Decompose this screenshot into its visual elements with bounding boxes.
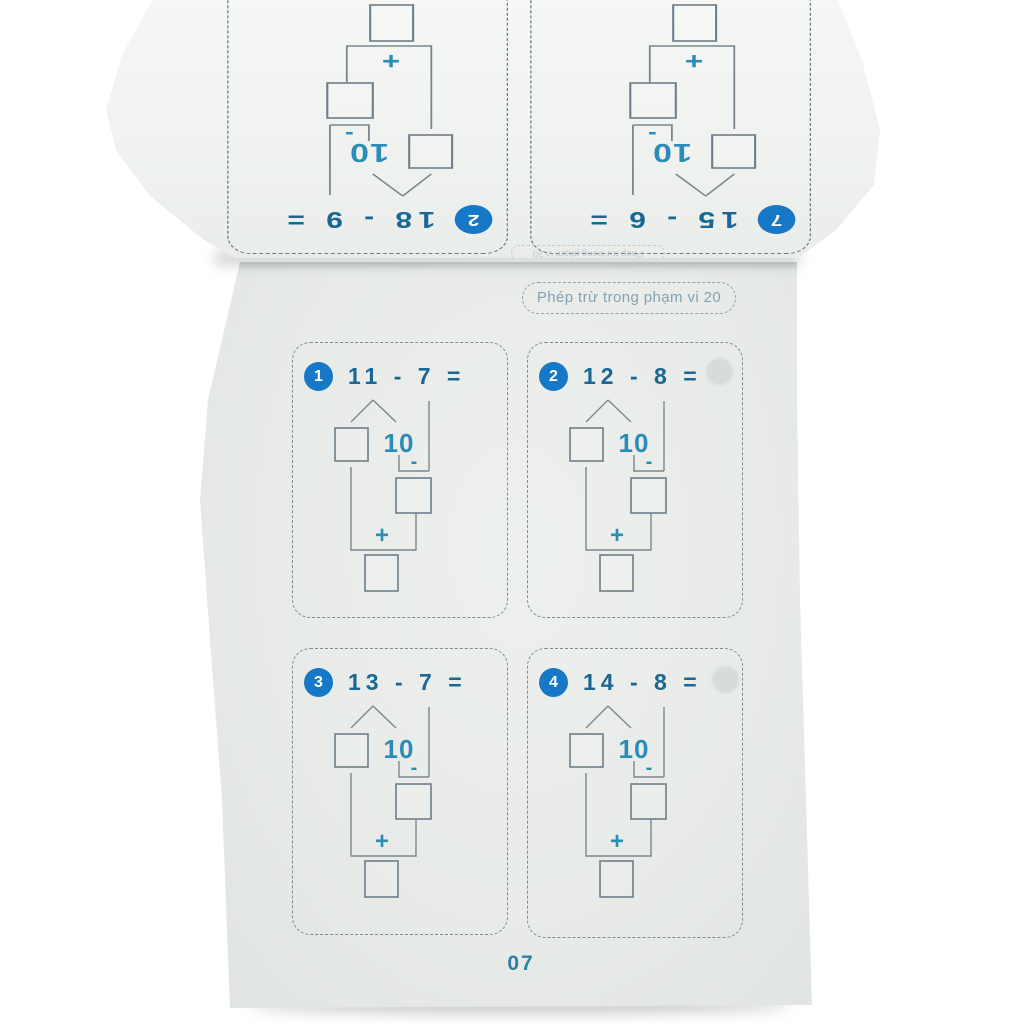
decomposition-diagram: 10 - + <box>293 391 509 619</box>
flipped-page-content: 7 15 - 6 = 10 - + <box>100 0 890 266</box>
ten-label: 10 <box>349 138 389 166</box>
answer-box <box>396 478 431 513</box>
answer-box <box>673 5 716 41</box>
minus-sign: - <box>646 757 653 779</box>
split-caret <box>373 174 432 196</box>
answer-box <box>600 861 633 897</box>
plus-sign: + <box>610 828 624 855</box>
exercise-header: 1 11 - 7 = <box>304 362 465 391</box>
plus-sign: + <box>610 522 624 549</box>
split-caret <box>586 400 631 422</box>
exercise-equation: 11 - 7 = <box>348 363 465 390</box>
answer-box <box>712 135 755 168</box>
answer-box <box>631 784 666 819</box>
split-caret <box>351 706 396 728</box>
minus-sign: - <box>411 451 418 473</box>
exercise-card: 2 18 - 9 = 10 - + <box>227 0 508 254</box>
exercise-header: 4 14 - 8 = <box>539 668 702 697</box>
answer-box <box>570 734 603 767</box>
exercise-equation: 18 - 9 = <box>281 206 435 233</box>
flipped-previous-page: 7 15 - 6 = 10 - + <box>100 0 890 266</box>
answer-box <box>630 83 676 118</box>
exercise-equation: 15 - 6 = <box>584 206 738 233</box>
answer-box <box>335 734 368 767</box>
decomposition-diagram: 10 - + <box>226 0 507 205</box>
answer-box <box>365 861 398 897</box>
exercise-header: 7 15 - 6 = <box>584 205 795 234</box>
decomposition-diagram: 10 - + <box>293 697 509 925</box>
plus-sign: + <box>375 828 389 855</box>
split-caret <box>351 400 396 422</box>
plus-sign: + <box>382 48 400 75</box>
split-caret <box>586 706 631 728</box>
exercise-header: 2 18 - 9 = <box>281 205 492 234</box>
exercise-card: 1 11 - 7 = 10 - + <box>292 342 508 618</box>
minus-sign: - <box>345 124 354 146</box>
decomposition-diagram: 10 - + <box>528 391 744 619</box>
answer-box <box>327 83 373 118</box>
exercise-card: 2 12 - 8 = 10 - + <box>527 342 743 618</box>
decomposition-diagram: 10 - + <box>528 697 744 925</box>
page-number: 07 <box>486 952 556 976</box>
split-caret <box>676 174 735 196</box>
exercise-number-badge: 4 <box>539 668 568 697</box>
decomposition-diagram: 10 - + <box>529 0 810 205</box>
exercise-number-badge: 2 <box>455 205 493 234</box>
workbook-photo: Phép trừ trong phạm vi 20 1 11 - 7 = 10 … <box>0 0 1024 1024</box>
exercise-equation: 14 - 8 = <box>583 669 702 696</box>
exercise-header: 2 12 - 8 = <box>539 362 702 391</box>
exercise-card: 3 13 - 7 = 10 - + <box>292 648 508 935</box>
plus-sign: + <box>685 48 703 75</box>
answer-box <box>365 555 398 591</box>
exercise-equation: 13 - 7 = <box>348 669 467 696</box>
answer-box <box>570 428 603 461</box>
answer-box <box>335 428 368 461</box>
exercise-header: 3 13 - 7 = <box>304 668 467 697</box>
minus-sign: - <box>648 124 657 146</box>
exercise-card: 4 14 - 8 = 10 - + <box>527 648 743 938</box>
answer-box <box>370 5 413 41</box>
exercise-number-badge: 1 <box>304 362 333 391</box>
exercise-number-badge: 3 <box>304 668 333 697</box>
lesson-title-badge: Phép trừ trong phạm vi 20 <box>522 282 736 314</box>
answer-box <box>631 478 666 513</box>
plus-sign: + <box>375 522 389 549</box>
answer-box <box>600 555 633 591</box>
exercise-card: 7 15 - 6 = 10 - + <box>530 0 811 254</box>
ten-label: 10 <box>652 138 692 166</box>
minus-sign: - <box>411 757 418 779</box>
minus-sign: - <box>646 451 653 473</box>
exercise-number-badge: 2 <box>539 362 568 391</box>
answer-box <box>396 784 431 819</box>
exercise-number-badge: 7 <box>758 205 796 234</box>
exercise-equation: 12 - 8 = <box>583 363 702 390</box>
workbook-page: Phép trừ trong phạm vi 20 1 11 - 7 = 10 … <box>198 260 814 1012</box>
answer-box <box>409 135 452 168</box>
